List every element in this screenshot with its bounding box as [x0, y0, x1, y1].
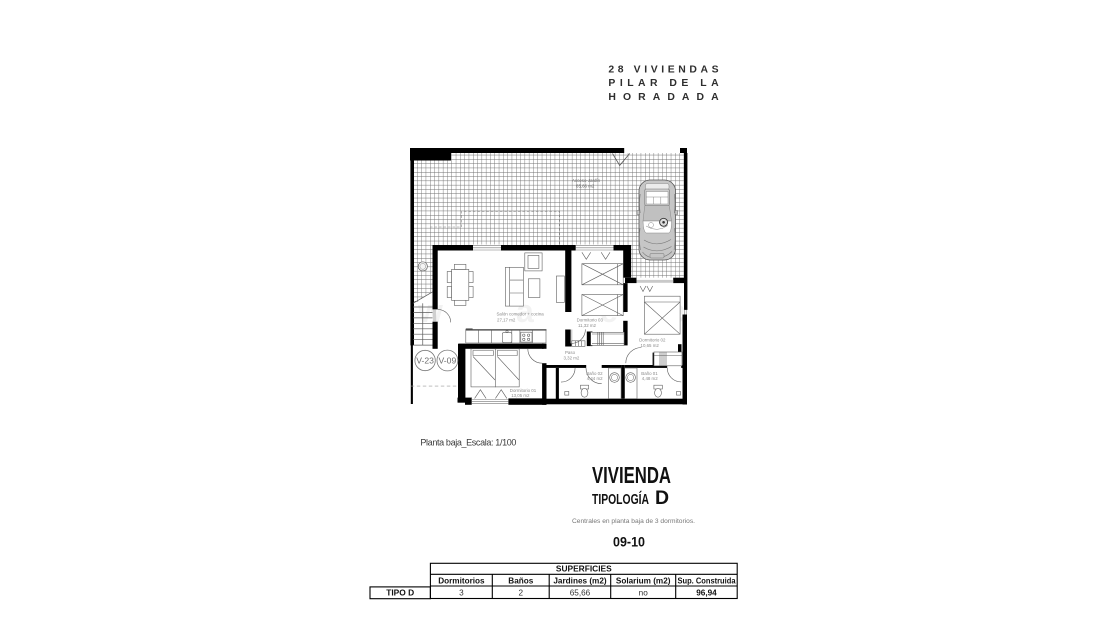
svg-text:Planta baja_Escala: 1/100: Planta baja_Escala: 1/100	[420, 438, 516, 448]
svg-text:VIVIENDA: VIVIENDA	[592, 462, 671, 488]
svg-text:Baños: Baños	[508, 576, 533, 585]
svg-text:4,48 m2: 4,48 m2	[642, 376, 658, 381]
svg-text:27,17 m2: 27,17 m2	[497, 318, 516, 323]
svg-text:Centrales en planta baja de 3: Centrales en planta baja de 3 dormitorio…	[572, 518, 695, 525]
svg-text:V-09: V-09	[439, 356, 457, 366]
svg-text:11,32 m2: 11,32 m2	[578, 323, 597, 328]
svg-text:Acceso-Jardín: Acceso-Jardín	[572, 178, 601, 183]
svg-text:65,66 m2: 65,66 m2	[576, 184, 595, 189]
svg-text:Solarium (m2): Solarium (m2)	[616, 576, 671, 585]
svg-text:TIPOLOGÍA: TIPOLOGÍA	[592, 491, 649, 508]
svg-text:09-10: 09-10	[613, 534, 645, 550]
svg-text:D: D	[655, 487, 669, 509]
svg-text:3: 3	[459, 588, 464, 597]
svg-text:V-23: V-23	[416, 356, 434, 366]
svg-text:Jardines (m2): Jardines (m2)	[553, 576, 607, 585]
svg-text:Salón comedor + cocina: Salón comedor + cocina	[497, 312, 545, 317]
svg-text:no: no	[639, 588, 649, 597]
svg-text:13,05 m2: 13,05 m2	[511, 393, 530, 398]
svg-text:Dormitorio 03: Dormitorio 03	[577, 318, 604, 323]
svg-text:4,44 m2: 4,44 m2	[587, 376, 603, 381]
svg-text:3,32 m2: 3,32 m2	[564, 355, 580, 360]
svg-text:10,65 m2: 10,65 m2	[641, 343, 660, 348]
svg-text:65,66: 65,66	[570, 588, 591, 597]
svg-text:Sup. Construida: Sup. Construida	[678, 576, 736, 585]
svg-text:Dormitorios: Dormitorios	[438, 576, 485, 585]
svg-text:Dormitorio 01: Dormitorio 01	[510, 388, 537, 393]
svg-text:Paso: Paso	[565, 350, 576, 355]
svg-text:SUPERFICIES: SUPERFICIES	[556, 564, 612, 574]
svg-text:Dormitorio 02: Dormitorio 02	[639, 338, 666, 343]
svg-text:96,94: 96,94	[696, 588, 717, 597]
svg-text:TIPO D: TIPO D	[386, 587, 414, 597]
svg-text:2: 2	[519, 588, 524, 597]
